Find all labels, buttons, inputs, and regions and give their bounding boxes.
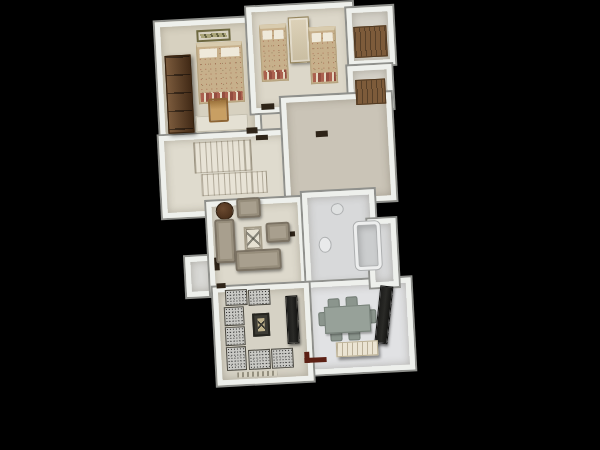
floor-cushion-2 — [248, 289, 271, 306]
floorplan-canvas — [0, 0, 600, 450]
stair-flight-lower — [201, 171, 268, 196]
door-marker-3 — [261, 103, 274, 110]
closet-shelf-1 — [353, 25, 388, 58]
double-bed — [196, 41, 245, 104]
door-marker-4 — [316, 131, 328, 138]
floor-cushion-3 — [224, 306, 245, 326]
wall-art — [196, 28, 231, 42]
floor-cushion-4 — [225, 326, 246, 346]
floor-plan — [146, 0, 418, 394]
floor-cushion-7 — [271, 348, 294, 369]
coffee-table — [244, 226, 263, 251]
door-marker-6 — [216, 283, 225, 288]
closet-shelf-2 — [355, 78, 386, 105]
tv-panel — [285, 295, 299, 344]
single-bed-1 — [259, 24, 289, 82]
bathtub — [353, 221, 381, 270]
desk-chair — [208, 98, 229, 123]
floor-cushion-1 — [225, 289, 248, 306]
sofa-left — [214, 219, 236, 264]
door-marker-2 — [256, 135, 268, 141]
floor-cushion-6 — [248, 349, 271, 370]
floor-cushion-5 — [226, 346, 247, 371]
bedside-cabinet — [288, 16, 311, 63]
majlis-table — [252, 313, 270, 337]
stair-flight-upper — [193, 140, 253, 174]
wardrobe-dark — [165, 55, 195, 134]
armchair-2 — [265, 222, 290, 243]
sofa-bottom — [235, 248, 282, 271]
entry-door-marker — [304, 351, 327, 363]
armchair-1 — [236, 197, 261, 218]
single-bed-2 — [308, 26, 338, 84]
bench — [336, 340, 379, 357]
door-marker-1 — [246, 127, 257, 134]
room-large-room — [281, 92, 397, 206]
dining-table — [324, 305, 371, 334]
